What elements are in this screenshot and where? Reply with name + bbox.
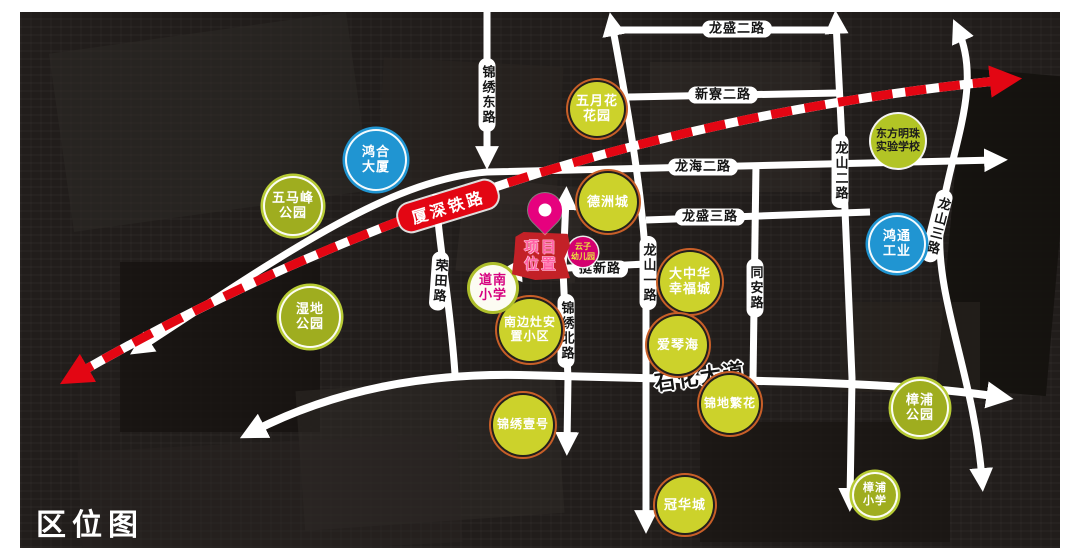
road-label-longshan-2-road: 龙山二路 xyxy=(832,134,849,208)
landmark-label: 公园 xyxy=(296,317,324,332)
landmark-dongfang-mingzhu-school: 东方明珠实验学校 xyxy=(871,114,925,168)
landmark-label: 花园 xyxy=(583,109,611,124)
landmark-label: 道南 xyxy=(479,273,507,288)
landmark-label: 南边灶安 xyxy=(504,316,556,330)
landmark-label: 德洲城 xyxy=(587,195,629,210)
project-label: 位置 xyxy=(524,256,558,273)
road-label-text: 荣田路 xyxy=(431,258,449,304)
landmark-dazhonghua-xingfucheng: 大中华幸福城 xyxy=(660,252,720,312)
landmark-guanhuacheng: 冠华城 xyxy=(657,477,713,533)
landmark-dezhoucheng: 德洲城 xyxy=(579,173,637,231)
road-label-text: 新寮二路 xyxy=(695,87,751,102)
road-label-text: 锦绣北路 xyxy=(559,301,574,361)
landmark-label: 公园 xyxy=(906,408,934,423)
landmark-label: 五马峰 xyxy=(272,191,314,206)
landmark-jinxiu-yihao: 锦绣壹号 xyxy=(493,395,553,455)
landmark-aiqinhai: 爱琴海 xyxy=(649,316,707,374)
project-label: 项目 xyxy=(524,239,558,256)
landmark-label: 云子 xyxy=(575,242,591,252)
landmark-label: 工业 xyxy=(883,244,911,259)
landmark-honghe-tower: 鸿合大厦 xyxy=(347,131,405,189)
landmark-label: 五月花 xyxy=(576,94,618,109)
road-label-text: 龙盛三路 xyxy=(682,209,738,224)
landmark-label: 实验学校 xyxy=(876,141,920,154)
road-label-text: 龙山一路 xyxy=(641,243,656,303)
road-label-longsheng-2-road: 龙盛二路 xyxy=(702,21,772,38)
landmark-zhangpu-park: 樟浦公园 xyxy=(893,381,947,435)
landmark-label: 冠华城 xyxy=(664,498,706,513)
landmark-label: 湿地 xyxy=(296,302,324,317)
landmark-label: 鸿通 xyxy=(883,229,911,244)
location-map: 厦深铁路 锦绣东路 龙盛二路 新寮二路 龙海二路 龙盛三路 龙山一路 龙山二路 … xyxy=(0,0,1080,556)
landmark-label: 小学 xyxy=(479,288,507,303)
landmark-jindi-fanhua: 锦地繁花 xyxy=(701,375,759,433)
landmark-label: 大中华 xyxy=(669,267,711,282)
road-label-text: 同安路 xyxy=(748,266,763,311)
road-label-longsheng-3-road: 龙盛三路 xyxy=(675,209,745,226)
road-label-xinliao-2-road: 新寮二路 xyxy=(688,87,758,104)
road-label-tongan-road: 同安路 xyxy=(747,259,764,318)
landmark-label: 爱琴海 xyxy=(657,338,699,353)
landmark-label: 樟浦 xyxy=(906,393,934,408)
landmark-yunzi-kindergarten: 云子幼儿园 xyxy=(568,237,598,267)
road-label-text: 龙盛二路 xyxy=(709,21,765,36)
landmark-label: 幸福城 xyxy=(669,282,711,297)
landmark-nanbianzao-estate: 南边灶安置小区 xyxy=(499,299,561,361)
landmark-zhangpu-primary-school: 樟浦小学 xyxy=(854,474,896,516)
landmark-label: 大厦 xyxy=(362,160,390,175)
road-label-longshan-1-road: 龙山一路 xyxy=(640,236,657,310)
landmark-label: 幼儿园 xyxy=(571,252,595,262)
landmark-label: 锦绣壹号 xyxy=(497,418,549,432)
project-site-polygon: 项目 位置 xyxy=(512,232,570,280)
landmark-label: 东方明珠 xyxy=(876,128,920,141)
landmark-wumafeng-park: 五马峰公园 xyxy=(265,178,321,234)
road-label-longhai-2-road: 龙海二路 xyxy=(668,159,738,176)
road-line-longshan-2 xyxy=(836,22,852,500)
road-line-shihua xyxy=(252,375,1000,432)
landmark-mayflower-garden: 五月花花园 xyxy=(570,82,624,136)
road-label-jinxiu-east-road: 锦绣东路 xyxy=(479,58,496,132)
landmark-label: 锦地繁花 xyxy=(704,397,756,411)
landmark-label: 小学 xyxy=(863,495,887,508)
landmark-hongtong-industry: 鸿通工业 xyxy=(870,217,924,271)
road-label-text: 龙山二路 xyxy=(833,141,848,201)
landmark-label: 置小区 xyxy=(510,330,549,344)
landmark-wetland-park: 湿地公园 xyxy=(281,288,339,346)
landmark-label: 樟浦 xyxy=(863,482,887,495)
road-label-text: 锦绣东路 xyxy=(480,65,495,125)
landmark-label: 公园 xyxy=(279,206,307,221)
landmark-daonan-primary-school: 道南小学 xyxy=(470,265,516,311)
map-title: 区位图 xyxy=(36,500,144,544)
road-label-text: 龙海二路 xyxy=(675,159,731,174)
landmark-label: 鸿合 xyxy=(362,145,390,160)
